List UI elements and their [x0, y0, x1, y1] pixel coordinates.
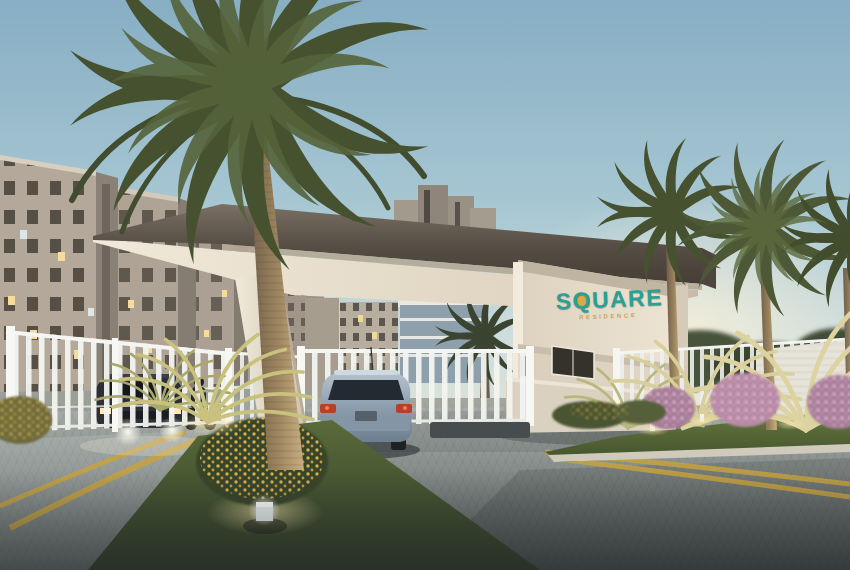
license-plate: [355, 411, 377, 421]
logo-text: SQUARE: [555, 285, 674, 314]
curb-slab: [430, 422, 530, 438]
gatehouse-logo: SQUARE RESIDENCE: [555, 285, 675, 336]
architectural-render-scene: SQUARE RESIDENCE: [0, 0, 850, 570]
scene-canvas: [0, 0, 850, 570]
bottom-vignette: [0, 470, 850, 570]
